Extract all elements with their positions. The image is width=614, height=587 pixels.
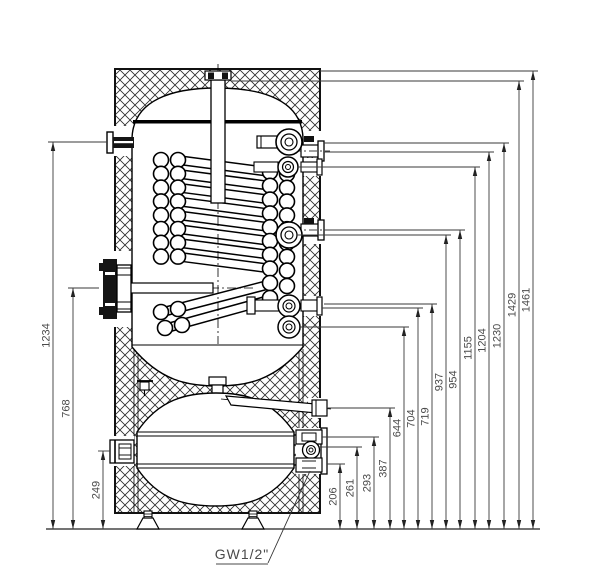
dimension-label: 1155 — [463, 336, 475, 360]
dimension-label: 644 — [392, 419, 404, 437]
coil-tube-end — [280, 180, 295, 195]
coil-tube-end — [171, 249, 186, 264]
coil-tube-end — [154, 249, 169, 264]
coil-tube-end — [263, 192, 278, 207]
dimension-label: 293 — [362, 474, 374, 492]
coil-tube-end — [263, 247, 278, 262]
coil-tube-end — [154, 153, 169, 168]
coil-tube-end — [154, 305, 169, 320]
dimension-label: 1429 — [507, 293, 519, 317]
coil-tube-end — [171, 153, 186, 168]
coil-tube-end — [263, 178, 278, 193]
coil-tube-end — [171, 208, 186, 223]
cap-bolt-left — [208, 73, 214, 80]
dimension-label: 719 — [420, 407, 432, 425]
dimension-label: 1204 — [477, 328, 489, 352]
anode-pipe-body — [211, 80, 225, 203]
coil-tube-end — [158, 321, 173, 336]
coil-tube-end — [154, 180, 169, 195]
coil-tube-end — [171, 222, 186, 237]
coil-tube-end — [171, 235, 186, 250]
dimension-label: 387 — [378, 459, 390, 477]
right-port-coil-return — [278, 316, 300, 338]
coil-tube-end — [280, 208, 295, 223]
lower-tank-shell — [137, 393, 294, 506]
dimension-label: 249 — [91, 481, 103, 499]
dimension-label: 1234 — [41, 323, 53, 347]
dimension-label: 937 — [434, 373, 446, 391]
cap-bolt-right — [222, 73, 228, 80]
port-206 — [296, 458, 322, 472]
coil-tube-end — [171, 194, 186, 209]
coil-tube-end — [171, 180, 186, 195]
inter-tank-fitting — [209, 377, 226, 395]
coil-tube-end — [280, 263, 295, 278]
coil-tube-end — [175, 318, 190, 333]
drawing-canvas: GW1/2" 123476824920626129338764470471993… — [0, 0, 614, 587]
coil-tube-end — [154, 208, 169, 223]
coil-tube-end — [280, 194, 295, 209]
dimension-label: 261 — [345, 479, 357, 497]
left-heating-flange — [99, 259, 131, 319]
tank-technical-drawing: GW1/2" 123476824920626129338764470471993… — [0, 0, 614, 587]
coil-tube-end — [154, 194, 169, 209]
dimension-label: 704 — [406, 409, 418, 427]
dimension-label: 1230 — [492, 324, 504, 348]
coil-tube-end — [154, 222, 169, 237]
dimension-label: 1461 — [521, 288, 533, 312]
coil-tube-end — [263, 220, 278, 235]
coil-tube-end — [171, 302, 186, 317]
dimension-label: 954 — [448, 370, 460, 388]
coil-tube-end — [280, 249, 295, 264]
lower-tank — [137, 393, 294, 506]
coil-tube-end — [154, 235, 169, 250]
coil-tube-end — [263, 276, 278, 291]
coil-tube-end — [154, 166, 169, 181]
left-lower-port — [110, 440, 134, 463]
gw-port-label: GW1/2" — [215, 546, 270, 562]
coil-tube-end — [280, 279, 295, 294]
coil-tube-end — [263, 206, 278, 221]
coil-tube-end — [263, 261, 278, 276]
coil-tube-end — [171, 166, 186, 181]
dimension-label: 768 — [61, 399, 73, 417]
dimension-label: 206 — [328, 487, 340, 505]
